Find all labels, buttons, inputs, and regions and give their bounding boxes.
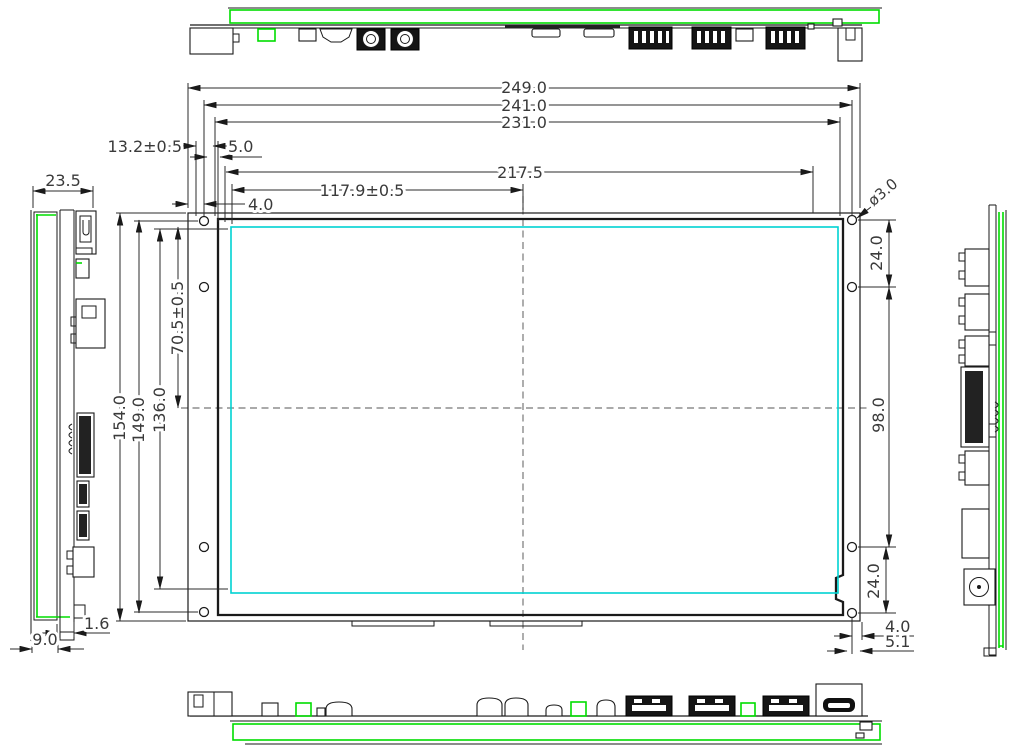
component-small bbox=[317, 708, 325, 716]
dimension-side-depth: 23.5 bbox=[33, 171, 93, 208]
header-connector-2 bbox=[959, 294, 989, 330]
mini-port-box bbox=[816, 684, 872, 738]
connector-small-box-2 bbox=[736, 29, 753, 41]
technical-drawing: 249.0 241.0 231.0 13.2±0.5 5.0 217.5 117… bbox=[0, 0, 1027, 753]
dim-hole-to-frame: 5.0 bbox=[228, 137, 253, 156]
dim-side-total-depth: 9.0 bbox=[32, 630, 57, 649]
bracket-right-top bbox=[838, 28, 862, 61]
left-side-view: 23.5 1.6 9.0 bbox=[10, 171, 110, 653]
rj45-connector bbox=[71, 299, 105, 348]
cap-component-3 bbox=[505, 698, 528, 716]
right-side-view bbox=[959, 205, 1006, 656]
panel-pcb-outline-bottom bbox=[233, 724, 880, 740]
drawing-canvas: 249.0 241.0 231.0 13.2±0.5 5.0 217.5 117… bbox=[0, 0, 1027, 753]
top-edge-view bbox=[190, 8, 882, 61]
hdmi-connector-1 bbox=[629, 27, 672, 49]
component-tiny-2 bbox=[833, 19, 842, 26]
small-connector-lower bbox=[77, 511, 89, 540]
speaker-connector bbox=[320, 29, 352, 42]
terminal-connector bbox=[67, 547, 94, 577]
active-display-area bbox=[231, 227, 838, 593]
usb-connector-right bbox=[961, 367, 998, 447]
pin-leads bbox=[69, 424, 72, 454]
dim-edge-to-hole: 4.0 bbox=[248, 195, 273, 214]
mounting-hole-r2 bbox=[848, 283, 857, 292]
usb-a-connector-side bbox=[69, 413, 94, 477]
dim-overall-width: 249.0 bbox=[501, 78, 547, 97]
header-connector-4 bbox=[959, 451, 989, 485]
connector-box-1 bbox=[262, 703, 278, 716]
connector-low-2 bbox=[584, 29, 614, 37]
dim-side-depth: 23.5 bbox=[45, 171, 81, 190]
button-round-2 bbox=[391, 29, 419, 50]
dim-connector-offset: 13.2±0.5 bbox=[108, 137, 182, 156]
dimensions-right: ø3.0 24.0 98.0 24.0 4.0 5.1 bbox=[827, 175, 914, 654]
dim-hole-diameter: ø3.0 bbox=[864, 175, 901, 210]
mini-usb-connector bbox=[76, 211, 96, 254]
cap-component-5 bbox=[597, 700, 615, 716]
connector-green-2 bbox=[571, 702, 586, 716]
mounting-hole-l2 bbox=[200, 283, 209, 292]
dim-board-width: 217.5 bbox=[497, 163, 543, 182]
dim-panel-thickness: 1.6 bbox=[84, 614, 109, 633]
bottom-tab-1 bbox=[352, 621, 434, 626]
connector-green-3 bbox=[741, 703, 755, 716]
usb-a-port-1 bbox=[626, 696, 672, 716]
connector-small-box bbox=[299, 29, 316, 41]
bottom-edge-view bbox=[188, 684, 882, 744]
cap-component-1 bbox=[326, 702, 352, 716]
mounting-hole-bl bbox=[200, 608, 209, 617]
mounting-hole-tr bbox=[848, 216, 857, 225]
bottom-foot bbox=[60, 632, 74, 640]
hdmi-connector-3 bbox=[766, 27, 805, 49]
small-connector-mid bbox=[77, 481, 89, 507]
cap-component-4 bbox=[546, 705, 562, 716]
dim-frame-height: 136.0 bbox=[150, 387, 169, 433]
dim-mount-span-height: 149.0 bbox=[129, 397, 148, 443]
bracket-left-top bbox=[190, 28, 239, 54]
dim-active-center-y: 70.5±0.5 bbox=[168, 281, 187, 355]
header-connector-3 bbox=[959, 336, 989, 366]
fpc-strip bbox=[505, 25, 620, 29]
bracket-left-bottom bbox=[188, 692, 232, 716]
dim-overall-height: 154.0 bbox=[110, 395, 129, 441]
small-connector-upper bbox=[76, 259, 89, 278]
panel-metal-frame bbox=[218, 219, 843, 615]
dim-hole-pitch-top: 24.0 bbox=[867, 235, 886, 271]
hdmi-connector-2 bbox=[692, 27, 731, 49]
connector-header-green bbox=[258, 29, 275, 41]
panel-pcb-outline-top bbox=[230, 10, 879, 23]
bottom-tab-2 bbox=[490, 621, 582, 626]
mounting-hole-l3 bbox=[200, 543, 209, 552]
dim-active-center-x: 117.9±0.5 bbox=[320, 181, 405, 200]
usb-a-port-2 bbox=[689, 696, 735, 716]
usb-a-port-3 bbox=[763, 696, 809, 716]
barrel-jack bbox=[964, 569, 995, 605]
header-connector-1 bbox=[959, 249, 989, 286]
dimensions-left: 154.0 149.0 136.0 70.5±0.5 bbox=[110, 213, 228, 621]
dimension-side-total: 9.0 bbox=[10, 630, 84, 653]
cap-component-2 bbox=[477, 698, 502, 716]
mounting-hole-br bbox=[848, 609, 857, 618]
button-round-1 bbox=[357, 29, 385, 50]
dimensions-top: 249.0 241.0 231.0 13.2±0.5 5.0 217.5 117… bbox=[108, 78, 860, 224]
component-tiny bbox=[808, 24, 814, 29]
dim-hole-pitch-middle: 98.0 bbox=[869, 397, 888, 433]
outer-frame bbox=[188, 213, 860, 621]
module-box bbox=[962, 509, 989, 558]
dim-edge-to-notch: 5.1 bbox=[885, 632, 910, 651]
pcb-outline-right bbox=[999, 212, 1003, 648]
front-view bbox=[181, 196, 868, 650]
mounting-hole-r3 bbox=[848, 543, 857, 552]
mounting-hole-tl bbox=[200, 217, 209, 226]
connector-low-1 bbox=[532, 29, 560, 37]
dim-hole-pitch-bottom: 24.0 bbox=[864, 563, 883, 599]
pcb-outline-left bbox=[36, 214, 70, 617]
connector-green-1 bbox=[296, 703, 311, 716]
dim-frame-width: 231.0 bbox=[501, 113, 547, 132]
